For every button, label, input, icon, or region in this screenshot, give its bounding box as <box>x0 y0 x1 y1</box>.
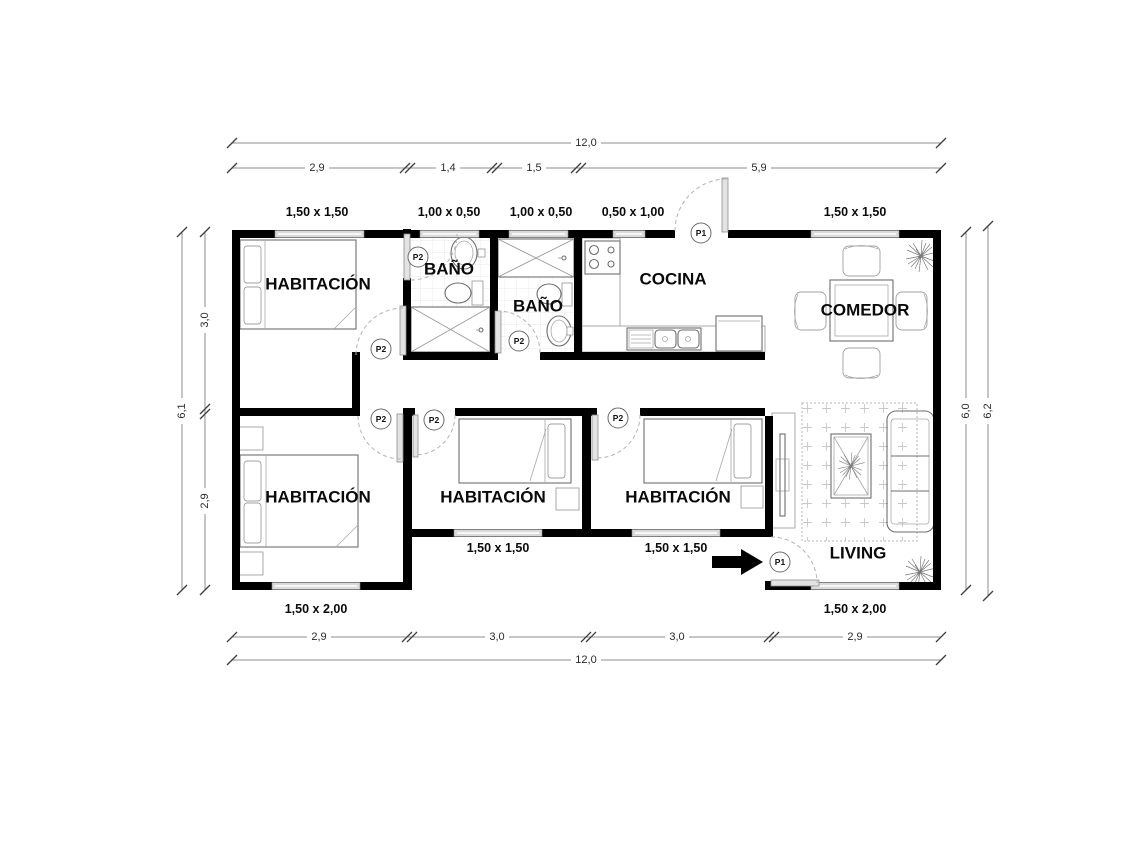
door-tag-p2: P2 <box>608 408 628 428</box>
dim-label: 3,0 <box>669 631 684 643</box>
window <box>454 530 542 537</box>
door-tag-label: P2 <box>413 252 424 262</box>
dimension-right-inner: 6,0 <box>958 227 974 595</box>
dimension-left-total: 6,1 <box>174 227 190 595</box>
door-tag-label: P1 <box>696 228 707 238</box>
dimension-top-total: 12,0 <box>227 136 946 149</box>
shower-icon <box>498 239 574 277</box>
shower-icon <box>411 307 490 352</box>
chair-icon <box>843 348 880 379</box>
window-label: 1,50 x 1,50 <box>645 541 708 555</box>
door-tag-p1: P1 <box>770 552 790 572</box>
window-label: 1,50 x 1,50 <box>286 205 349 219</box>
dim-label: 6,0 <box>960 403 972 418</box>
room-label-kitchen: COCINA <box>639 270 706 289</box>
fridge-icon <box>716 316 762 351</box>
door-leaf <box>413 415 418 457</box>
window <box>275 231 364 238</box>
dimension-right-outer: 6,2 <box>980 221 996 601</box>
dim-label: 6,2 <box>982 403 994 418</box>
window <box>811 583 899 590</box>
room-label-bedroom4: HABITACIÓN <box>625 488 730 507</box>
room-label-bedroom3: HABITACIÓN <box>440 488 545 507</box>
door-tag-p2: P2 <box>371 409 391 429</box>
room-label-bedroom2: HABITACIÓN <box>265 488 370 507</box>
door-leaf <box>771 580 819 586</box>
dim-label: 2,9 <box>199 493 211 508</box>
room-label-bath1: BAÑO <box>424 259 474 279</box>
door-tag-p2: P2 <box>509 331 529 351</box>
dim-label: 12,0 <box>575 137 596 149</box>
floor-plan: P1 P1 P2 P2 P2 P2 P2 P2 HABITACIÓN BAÑO … <box>0 0 1140 855</box>
window-label: 0,50 x 1,00 <box>602 205 665 219</box>
door-tag-label: P2 <box>429 415 440 425</box>
dim-label: 2,9 <box>847 631 862 643</box>
dim-label: 5,9 <box>751 162 766 174</box>
floor-plan-page: P1 P1 P2 P2 P2 P2 P2 P2 HABITACIÓN BAÑO … <box>0 0 1140 855</box>
dimension-top-segments: 2,9 1,4 1,5 5,9 <box>227 161 946 174</box>
room-label-living: LIVING <box>830 544 887 563</box>
window-label: 1,00 x 0,50 <box>418 205 481 219</box>
window-label: 1,50 x 1,50 <box>467 541 530 555</box>
tv-unit-icon <box>772 413 795 528</box>
window-label: 1,00 x 0,50 <box>510 205 573 219</box>
dim-label: 6,1 <box>176 403 188 418</box>
dimension-bottom-segments: 2,9 3,0 3,0 2,9 <box>227 630 946 643</box>
dim-label: 1,4 <box>440 162 455 174</box>
plant-icon <box>906 240 937 272</box>
window <box>420 231 479 238</box>
room-label-bedroom1: HABITACIÓN <box>265 275 370 294</box>
room-label-dining: COMEDOR <box>821 301 910 320</box>
dim-label: 1,5 <box>526 162 541 174</box>
window-label: 1,50 x 1,50 <box>824 205 887 219</box>
door-leaf <box>722 178 728 232</box>
window-label: 1,50 x 2,00 <box>824 602 887 616</box>
door-tag-p2: P2 <box>371 339 391 359</box>
dim-label: 3,0 <box>199 312 211 327</box>
door-tag-label: P2 <box>376 414 387 424</box>
door-tag-label: P2 <box>514 336 525 346</box>
door-tag-p2: P2 <box>424 410 444 430</box>
window <box>272 583 360 590</box>
door-leaf <box>592 415 598 460</box>
chair-icon <box>843 246 880 277</box>
door-tag-label: P1 <box>775 557 786 567</box>
dim-label: 12,0 <box>575 654 596 666</box>
door-tag-label: P2 <box>376 344 387 354</box>
entry-arrow-icon <box>712 549 763 575</box>
dim-label: 2,9 <box>309 162 324 174</box>
dimension-bottom-total: 12,0 <box>227 653 946 666</box>
window <box>613 231 645 238</box>
toilet-icon <box>445 281 483 305</box>
door-tag-label: P2 <box>613 413 624 423</box>
window-label: 1,50 x 2,00 <box>285 602 348 616</box>
door-leaf <box>400 306 406 355</box>
window <box>632 530 720 537</box>
window <box>811 231 899 238</box>
room-label-bath2: BAÑO <box>513 296 563 316</box>
window <box>509 231 568 238</box>
door-tag-p1: P1 <box>691 223 711 243</box>
door-leaf <box>397 414 403 462</box>
dimension-left-segments: 3,0 2,9 <box>197 227 213 595</box>
dim-label: 3,0 <box>489 631 504 643</box>
dim-label: 2,9 <box>311 631 326 643</box>
door-leaf <box>495 311 501 353</box>
